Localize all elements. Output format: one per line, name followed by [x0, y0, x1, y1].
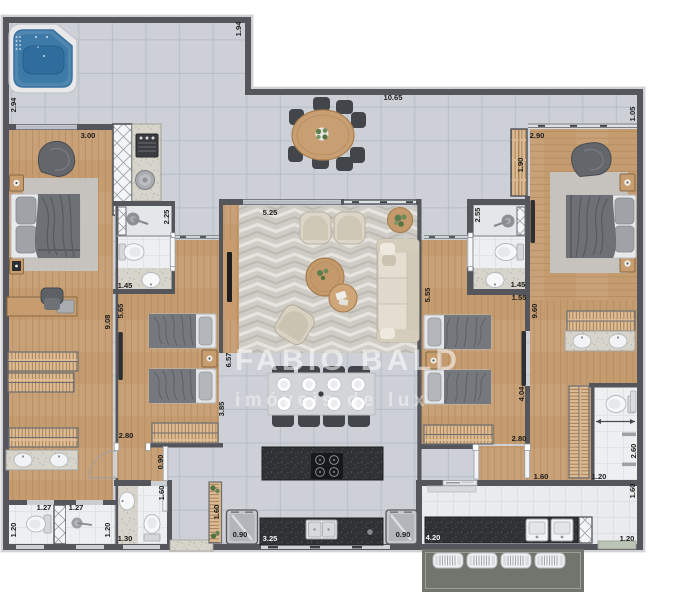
svg-text:0.90: 0.90 [396, 530, 411, 539]
svg-text:4.04: 4.04 [517, 386, 526, 402]
svg-text:1.60: 1.60 [534, 472, 549, 481]
svg-text:0.90: 0.90 [156, 455, 165, 470]
svg-text:1.60: 1.60 [157, 486, 166, 501]
svg-text:6.57: 6.57 [224, 353, 233, 368]
svg-text:FABIO BALD: FABIO BALD [235, 344, 461, 377]
svg-text:1.05: 1.05 [628, 106, 637, 122]
svg-text:2.80: 2.80 [512, 434, 527, 443]
svg-text:5.65: 5.65 [116, 303, 125, 319]
svg-text:2.80: 2.80 [119, 431, 134, 440]
svg-text:1.90: 1.90 [516, 158, 525, 173]
svg-text:5.55: 5.55 [423, 287, 432, 303]
svg-text:3.85: 3.85 [217, 401, 226, 417]
svg-text:1.20: 1.20 [103, 523, 112, 538]
svg-text:2.94: 2.94 [9, 97, 18, 113]
svg-text:4.20: 4.20 [426, 533, 441, 542]
svg-text:1.20: 1.20 [592, 472, 607, 481]
svg-text:1.30: 1.30 [118, 534, 133, 543]
svg-text:1.45: 1.45 [118, 281, 134, 290]
svg-text:0.90: 0.90 [233, 530, 248, 539]
svg-text:2.55: 2.55 [473, 207, 482, 223]
svg-text:1.45: 1.45 [511, 280, 527, 289]
svg-text:1.27: 1.27 [37, 503, 52, 512]
svg-text:10.65: 10.65 [383, 93, 403, 102]
svg-text:1.20: 1.20 [620, 534, 635, 543]
svg-text:9.08: 9.08 [103, 315, 112, 330]
svg-text:3.00: 3.00 [81, 131, 96, 140]
svg-text:1.55: 1.55 [512, 293, 528, 302]
svg-text:3.25: 3.25 [263, 534, 279, 543]
svg-text:9.60: 9.60 [530, 304, 539, 319]
svg-text:1.60: 1.60 [628, 484, 637, 499]
svg-text:2.60: 2.60 [629, 444, 638, 459]
svg-text:1.60: 1.60 [212, 505, 221, 520]
svg-text:2.25: 2.25 [162, 209, 171, 225]
svg-text:1.94: 1.94 [234, 21, 243, 37]
svg-text:1.27: 1.27 [69, 503, 84, 512]
svg-text:2.90: 2.90 [530, 131, 545, 140]
svg-text:5.25: 5.25 [263, 208, 279, 217]
svg-text:1.20: 1.20 [9, 523, 18, 538]
svg-text:imóveis de lux: imóveis de lux [235, 390, 429, 411]
